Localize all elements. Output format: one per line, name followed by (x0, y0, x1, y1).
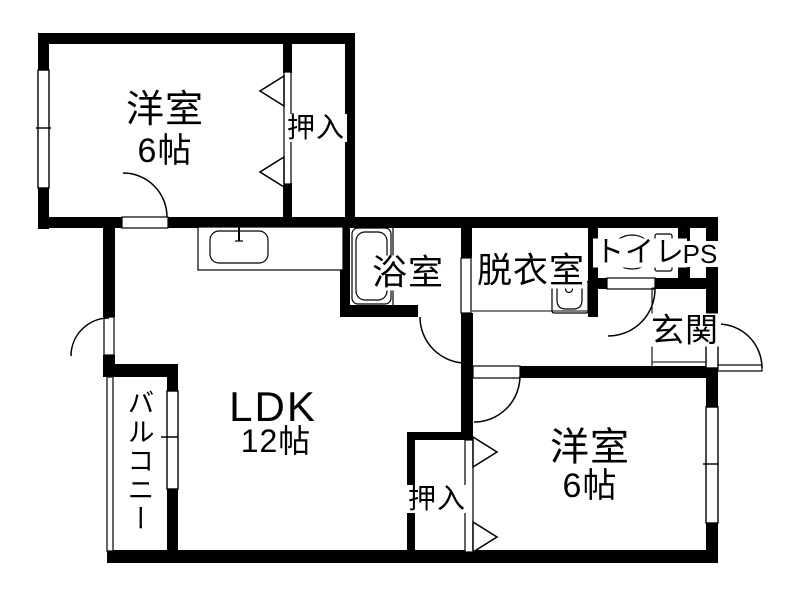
room-label-entrance: 玄関 (649, 314, 721, 347)
room-label-bathroom: 浴室 (370, 256, 446, 291)
wall-right-north (706, 217, 718, 324)
room-label-bedroom2: 洋室 (548, 429, 632, 468)
door-leaf-bedroom2 (473, 366, 520, 378)
room-label-dressing-room: 脱衣室 (475, 254, 587, 289)
door-arc-toilet (608, 289, 655, 336)
window-balcony (167, 391, 178, 489)
wall-bedroom1-left-upper (38, 33, 49, 72)
door-leaf-bedroom1 (122, 217, 168, 228)
window-bedroom2-east (706, 407, 718, 523)
wall-bedroom2-top-east (520, 366, 706, 378)
wall-right-south (706, 523, 718, 563)
door-arc-entry (718, 324, 762, 368)
wall-closet1-left-top (283, 33, 292, 73)
wall-closet2-top (407, 432, 473, 440)
wall-bedroom1-top (38, 33, 355, 44)
door-arc-bath (420, 317, 466, 363)
room-size-ldk: 12帖 (239, 425, 314, 457)
wall-right-mid (706, 368, 718, 407)
room-label-balcony: バルコニー (125, 387, 152, 536)
room-label-pipe-space: PS (681, 241, 720, 267)
floorplan-page: 洋室 6帖 押入 浴室 脱衣室 トイレ PS 玄関 LDK 12帖 押入 洋室 … (0, 0, 800, 600)
wall-bedroom2-top-west (461, 366, 473, 378)
balcony-rail (107, 377, 113, 551)
closet1-triangle-top (260, 76, 284, 106)
floorplan-drawing (0, 0, 800, 600)
room-label-closet1: 押入 (285, 114, 347, 142)
wall-toilet-bottom-left (598, 278, 607, 289)
room-label-toilet: トイレ (593, 239, 687, 268)
door-arc-ldk-west (71, 318, 109, 356)
door-leaf-bath (461, 258, 471, 313)
wall-closet1-left-bottom (283, 183, 292, 228)
closet2-triangle-bottom (473, 522, 497, 552)
wall-bath-dressing (461, 217, 472, 258)
door-leaf-entry (718, 365, 762, 371)
room-label-ldk: LDK (227, 386, 319, 428)
wall-main-horizontal (168, 217, 718, 228)
wall-balcony-top (103, 364, 178, 377)
door-leaf-ldk-west (104, 317, 114, 355)
door-arc-bedroom1 (123, 173, 167, 217)
wall-bedroom1-bottom-west (38, 217, 122, 228)
wall-ldk-left (103, 228, 115, 317)
closet1-triangle-bottom (260, 157, 284, 187)
wall-balcony-window-cap (167, 377, 178, 391)
window-bedroom1-west (38, 70, 49, 188)
room-label-closet2: 押入 (406, 485, 468, 513)
wall-bath-bottom (340, 305, 418, 317)
door-arc-bedroom2 (474, 376, 520, 422)
room-size-bedroom1: 6帖 (136, 134, 195, 168)
door-leaf-toilet (607, 278, 655, 289)
wall-balcony-window-south (167, 489, 178, 557)
closet2-triangle-top (473, 437, 497, 467)
room-label-bedroom1: 洋室 (124, 91, 206, 129)
room-size-bedroom2: 6帖 (561, 469, 620, 503)
